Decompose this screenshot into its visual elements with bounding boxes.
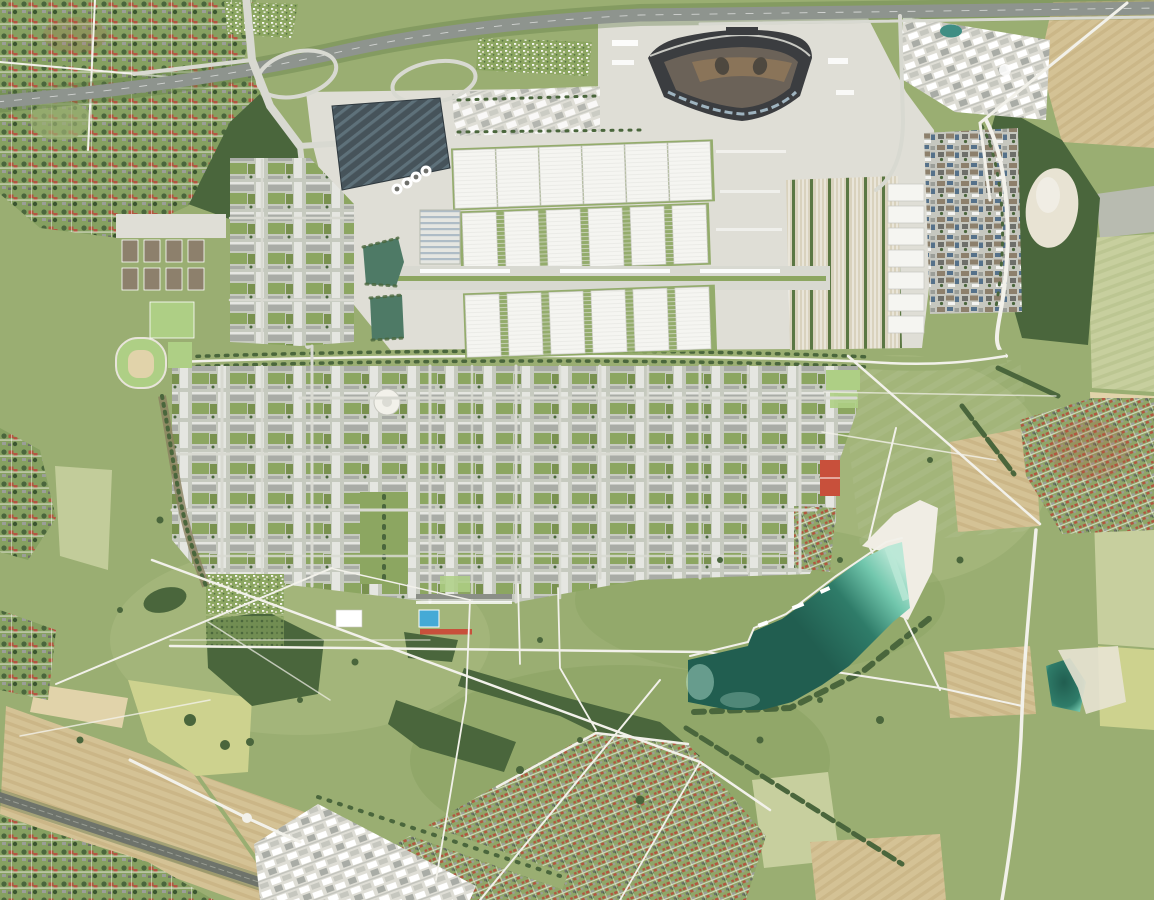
hall-small <box>888 250 924 267</box>
garage-row <box>416 601 512 604</box>
office-block <box>144 240 160 262</box>
tree <box>297 697 303 703</box>
tree <box>516 766 524 774</box>
red-track <box>420 629 472 635</box>
roof-cluster <box>1050 420 1130 480</box>
allotments <box>224 2 298 38</box>
tank-center <box>405 181 410 186</box>
tank-center <box>414 175 419 180</box>
swimming-pool <box>419 610 439 627</box>
silo <box>999 64 1011 76</box>
trailer-row <box>828 58 848 64</box>
orchard-rows <box>206 616 284 648</box>
campus-plaza <box>116 214 226 238</box>
hall-roof-ribs <box>462 205 708 271</box>
tree <box>246 738 254 746</box>
tree <box>352 659 359 666</box>
tank-center <box>424 169 429 174</box>
tree <box>636 796 645 805</box>
glass-roof <box>420 269 510 273</box>
trailer-row <box>612 40 638 46</box>
hall-small <box>888 228 924 245</box>
hall-small <box>888 184 924 201</box>
tree <box>77 737 84 744</box>
field-gray <box>1096 186 1154 238</box>
sand-pit <box>1036 177 1060 213</box>
hall-small <box>888 294 924 311</box>
apron-marking <box>716 150 786 153</box>
allotments <box>476 38 592 76</box>
tree <box>184 714 196 726</box>
works-pond <box>940 25 962 38</box>
office-block <box>188 268 204 290</box>
track-infield <box>128 350 154 378</box>
tank-center <box>395 187 400 192</box>
field <box>810 834 946 900</box>
parking-rows <box>786 176 902 350</box>
tree <box>117 607 123 613</box>
office-block <box>122 240 138 262</box>
office-block <box>188 240 204 262</box>
tree <box>817 697 823 703</box>
tree <box>927 457 933 463</box>
hall-row-2 <box>459 203 711 274</box>
tree <box>157 517 164 524</box>
trailer-row <box>612 60 634 65</box>
aerial-photo <box>0 0 1154 900</box>
trailer-row <box>836 90 854 95</box>
tree <box>757 737 764 744</box>
lake-shallows <box>720 692 760 708</box>
tree-row <box>458 130 640 132</box>
apron-marking <box>720 190 780 193</box>
apron-marking <box>716 228 782 231</box>
tree <box>837 557 843 563</box>
field <box>1088 234 1154 392</box>
pavilion <box>336 610 362 627</box>
hall-small <box>888 316 924 333</box>
hall-small <box>888 206 924 223</box>
service-buildings <box>452 86 600 136</box>
aerial-photo-canvas <box>0 0 1154 900</box>
pitch <box>826 370 860 390</box>
tree <box>220 740 230 750</box>
tree <box>717 557 723 563</box>
office-block <box>166 268 182 290</box>
hall-small <box>888 272 924 289</box>
office-block <box>166 240 182 262</box>
spine-median <box>392 276 826 281</box>
hall-roof-ribs <box>453 141 712 208</box>
lake-shallows <box>686 664 714 700</box>
office-block <box>144 268 160 290</box>
glass-roof <box>700 269 780 273</box>
roof-cluster <box>43 17 107 53</box>
hall-row-3 <box>463 285 717 360</box>
tree <box>957 557 964 564</box>
glass-roof <box>560 269 670 273</box>
hall-row-1 <box>451 139 715 210</box>
hall-roof-ribs <box>465 287 711 357</box>
tree <box>876 716 884 724</box>
pitch <box>168 342 192 368</box>
pond <box>370 295 404 340</box>
field <box>55 466 112 570</box>
tree <box>577 737 583 743</box>
housing-grid-north <box>230 158 354 346</box>
works-building <box>420 210 460 264</box>
field <box>1094 518 1154 648</box>
pitch <box>150 302 194 338</box>
court <box>440 576 470 592</box>
office-block <box>122 268 138 290</box>
hall-column-east <box>888 184 924 333</box>
pitch <box>830 392 858 408</box>
tree <box>537 637 543 643</box>
fan-north-block <box>726 27 758 35</box>
